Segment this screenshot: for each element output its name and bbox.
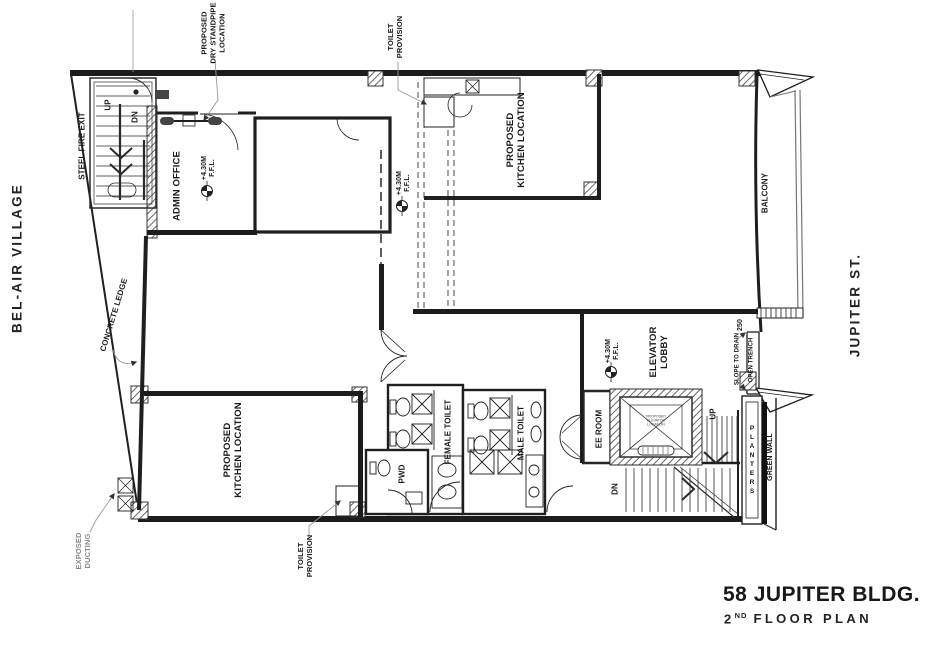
floor-plan-drawing [0, 0, 929, 652]
room-label-female-toilet: FEMALE TOILET [443, 400, 452, 465]
annotation-toilet-provision-bottom: TOILET PROVISION [297, 535, 315, 578]
room-label-ee-room: EE ROOM [594, 410, 603, 448]
annotation-toilet-provision-top: TOILET PROVISION [387, 16, 405, 59]
admin-office-walls [147, 113, 390, 235]
annotation-elevator-note: PROPOSED ELEVATOR LOCATION [646, 415, 666, 428]
dimension-250: 250 [737, 319, 745, 331]
level-markers [202, 181, 617, 382]
annotation-open-trench: OPEN TRENCH [748, 338, 755, 383]
floor-plan-sheet: BEL-AIR VILLAGE JUPITER ST. STEEL FIRE E… [0, 0, 929, 652]
stair-label-up-fire-exit: UP [103, 99, 112, 110]
dashed-lines [381, 82, 454, 308]
annotation-exposed-ducting: EXPOSED DUCTING [75, 533, 93, 570]
street-label-left: BEL-AIR VILLAGE [10, 183, 25, 333]
room-label-planters: PLANTERS [749, 425, 756, 497]
stair-label-dn-main: DN [610, 483, 619, 495]
room-label-green-wall: GREEN WALL [767, 433, 775, 481]
street-label-right: JUPITER ST. [848, 253, 863, 357]
toilet-rooms [366, 385, 573, 514]
left-wall [113, 236, 146, 510]
floor-ordinal: ND [735, 611, 748, 620]
stair-label-dn-fire-exit: DN [130, 111, 139, 123]
annotation-dry-standpipe: PROPOSED DRY STANDPIPE LOCATION [201, 2, 228, 63]
annotation-slope-to-drain: SLOPE TO DRAIN [734, 333, 741, 385]
floor-plan-text: FLOOR PLAN [753, 611, 872, 626]
room-label-pwd: PWD [397, 465, 406, 484]
room-label-admin-office: ADMIN OFFICE [171, 151, 182, 221]
level-label-lobby: +4.30M F.F.L. [605, 339, 622, 363]
level-label-admin: +4.30M F.F.L. [201, 156, 218, 180]
title-floor-plan: 2NDFLOOR PLAN [724, 611, 872, 626]
stair-label-up-main: UP [708, 408, 717, 419]
room-label-steel-fire-exit: STEEL FIRE EXIT [77, 112, 86, 180]
floor-number: 2 [724, 611, 735, 626]
level-label-mid: +4.30M F.F.L. [396, 171, 413, 195]
room-label-kitchen-top: PROPOSED KITCHEN LOCATION [505, 92, 527, 187]
room-label-male-toilet: MALE TOILET [516, 406, 525, 460]
room-label-balcony: BALCONY [760, 173, 769, 213]
room-label-elevator-lobby: ELEVATOR LOBBY [648, 327, 670, 378]
room-label-kitchen-bottom: PROPOSED KITCHEN LOCATION [222, 402, 244, 497]
title-building-name: 58 JUPITER BLDG. [723, 583, 920, 607]
